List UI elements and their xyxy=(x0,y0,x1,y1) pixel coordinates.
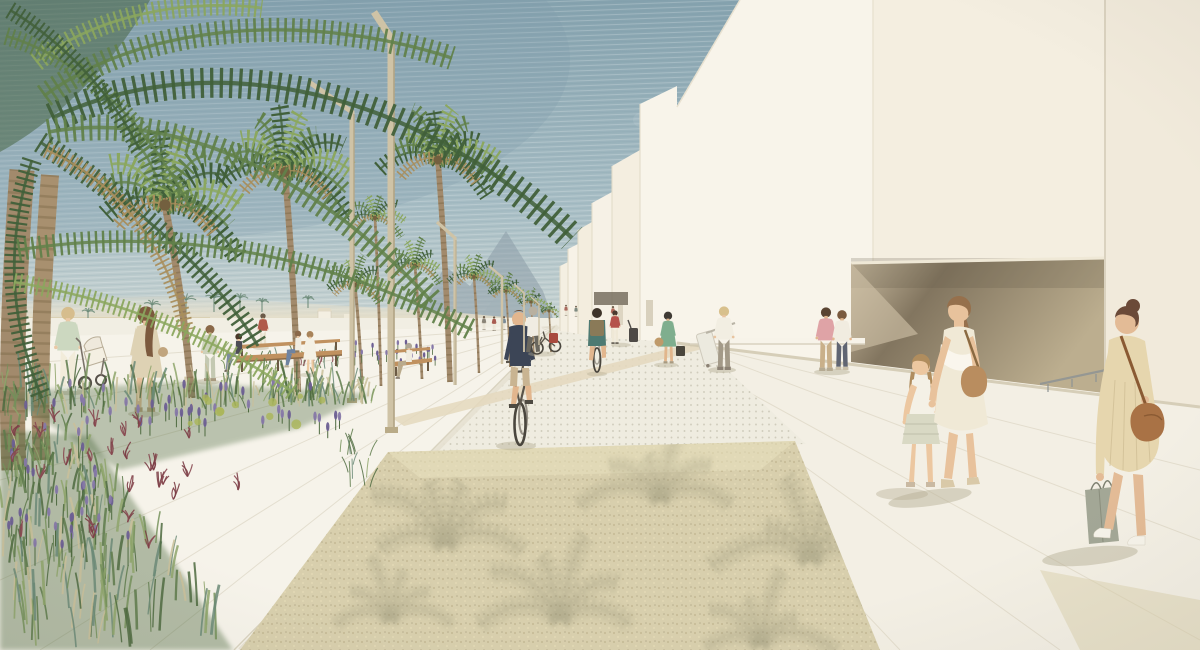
render-canvas xyxy=(0,0,1200,650)
promenade-rendering xyxy=(0,0,1200,650)
vignette xyxy=(0,0,1200,650)
